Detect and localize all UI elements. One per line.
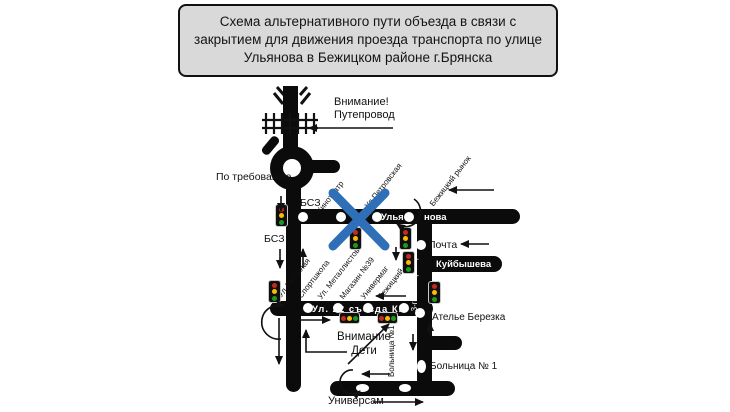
title-panel: Схема альтернативного пути объезда в свя… [178, 4, 558, 77]
stop-dot [336, 212, 346, 222]
kuibysheva-road-text: Куйбышева [436, 260, 491, 270]
stop-dot [415, 308, 425, 318]
roundabout-stub-right [306, 160, 340, 173]
road-bottom [330, 381, 455, 396]
supermarket-label: Универсам [328, 395, 384, 408]
stop-dot [404, 212, 414, 222]
detour-scheme-map: Схема альтернативного пути объезда в свя… [0, 0, 730, 412]
on-demand-stop-label: По требованию [216, 171, 291, 184]
traffic-light-icon [377, 312, 398, 324]
petrovskaya-street-label: Ул Петровская [364, 162, 404, 210]
traffic-light-icon [268, 280, 281, 303]
stop-dot [399, 384, 411, 392]
stop-dot [417, 360, 426, 373]
stop-dot [298, 212, 308, 222]
bezhitsky-market-label: Бежицкий рынок [429, 155, 473, 208]
bsz-lower-label: БСЗ [264, 233, 285, 246]
post-office-label: Почта [428, 239, 457, 252]
atelier-label: Ателье Березка [432, 312, 505, 324]
traffic-light-icon [399, 227, 412, 250]
children-warning-line1: Внимание [337, 331, 391, 343]
ulyanova-road-text-3: нова [424, 213, 447, 223]
road-overpass-approach [283, 86, 298, 152]
stop-dot [416, 240, 426, 250]
children-warning-line2: Дети [351, 345, 377, 357]
traffic-light-icon [349, 227, 362, 250]
hospital-street-label: Больница №1 [388, 325, 396, 377]
road-atelier-stub [424, 336, 462, 350]
page-title: Схема альтернативного пути объезда в свя… [194, 14, 542, 65]
stop-dot [356, 384, 369, 392]
traffic-light-icon [275, 204, 288, 227]
hospital-sign-label: Больница № 1 [430, 361, 497, 373]
overpass-warning-label: Внимание! Путепровод [334, 96, 416, 122]
traffic-light-icon [402, 251, 415, 274]
traffic-light-icon [428, 281, 441, 304]
ulyanova-road-text-2: Улья [381, 213, 404, 223]
traffic-light-icon [339, 312, 360, 324]
ulyanova-road-text-1: Ул. [352, 213, 366, 223]
